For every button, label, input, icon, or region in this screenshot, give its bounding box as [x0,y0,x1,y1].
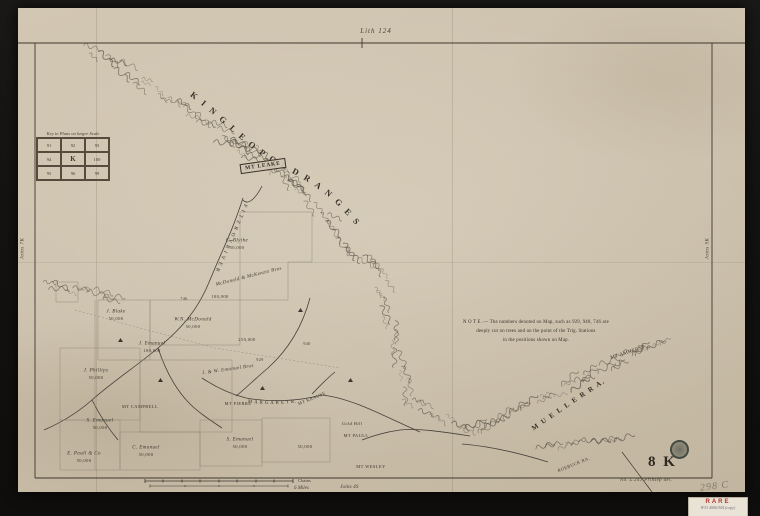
joins-left-label: Joins 7K [20,238,25,260]
joins-bottom-label: Joins 4S [340,484,359,490]
map-label: 50,000 [233,445,248,450]
map-label: C. Blythe [226,239,248,244]
key-to-plans: Key to Plans on larger Scale 91929394K10… [36,131,110,181]
map-label: J. Phillips [84,369,109,374]
map-label: W.N. McDonald [174,318,211,323]
lithographer-imprint: No. L.241 Prinsep del. [620,478,672,483]
label-margaret-river: M A R G A R E T R. [248,399,297,406]
scale-miles-label: 6 Miles [294,486,309,491]
note-line: deeply cut on trees and on the point of … [455,327,617,336]
map-label: 50,000 [77,459,92,464]
key-grid-cell: 95 [37,166,61,180]
key-grid-cell: 92 [61,138,85,152]
map-label: Gold Hill [342,422,363,427]
note-line: in the positions shown on Map. [455,336,617,345]
key-grid-cell: 99 [85,166,109,180]
map-label: C. Emanuel [132,446,160,451]
joins-right-label: Joins 9K [705,238,710,260]
scale-bar [145,479,293,488]
map-label: 929 [256,358,263,362]
key-grid-table: 91929394K100959699 [36,137,110,181]
map-label: MT CAMPBELL [122,405,158,410]
map-label: 50,000 [298,445,313,450]
map-linework: K I N G L E O P O L D R A N G E S M U E … [0,0,760,516]
lith-number: Lith 124 [336,27,416,35]
map-label: 940 [303,342,310,346]
map-label: S. Emanuel [227,438,254,443]
map-label: 50,000 [89,376,104,381]
map-label: 100,000 [143,349,160,354]
range-hachures [43,42,671,451]
map-label: MT WESLEY [356,465,386,470]
map-label: 50,000 [93,426,108,431]
key-grid-cell: 91 [37,138,61,152]
key-grid-cell: 100 [85,152,109,166]
photo-background: K I N G L E O P O L D R A N G E S M U E … [0,0,760,516]
map-label: 50,000 [109,317,124,322]
note-line: N O T E .— The numbers denoted on Map, s… [455,318,617,327]
label-mueller-range: M U E L L E R R A. [530,377,607,432]
key-grid-cell: 94 [37,152,61,166]
map-note: N O T E .— The numbers denoted on Map, s… [455,318,617,345]
map-label: J. Blake [106,310,125,315]
map-label: 100,000 [211,295,228,300]
map-label: 50,000 [186,325,201,330]
map-label: J. Emanuel [139,342,166,347]
map-label: MT PIERRE [225,402,252,407]
rare-label: RARE W33 4000/304 (copy) [688,497,748,516]
map-label: 746 [180,297,187,301]
map-label: 50,000 [230,246,245,251]
key-title: Key to Plans on larger Scale [36,131,110,136]
map-label: 50,000 [139,453,154,458]
key-grid-cell: K [61,152,85,166]
map-label: MT PAULL [343,434,368,439]
key-grid-cell: 96 [61,166,85,180]
key-grid-cell: 93 [85,138,109,152]
sheet-number: 8 K [648,454,677,471]
scale-chains-label: Chains [298,478,311,483]
lease-boundaries [56,212,340,470]
map-label: E. Paull & Co [67,452,101,457]
rare-label-note: W33 4000/304 (copy) [689,506,747,510]
map-label: 250,000 [238,338,255,343]
map-label: S. Emanuel [87,419,114,424]
